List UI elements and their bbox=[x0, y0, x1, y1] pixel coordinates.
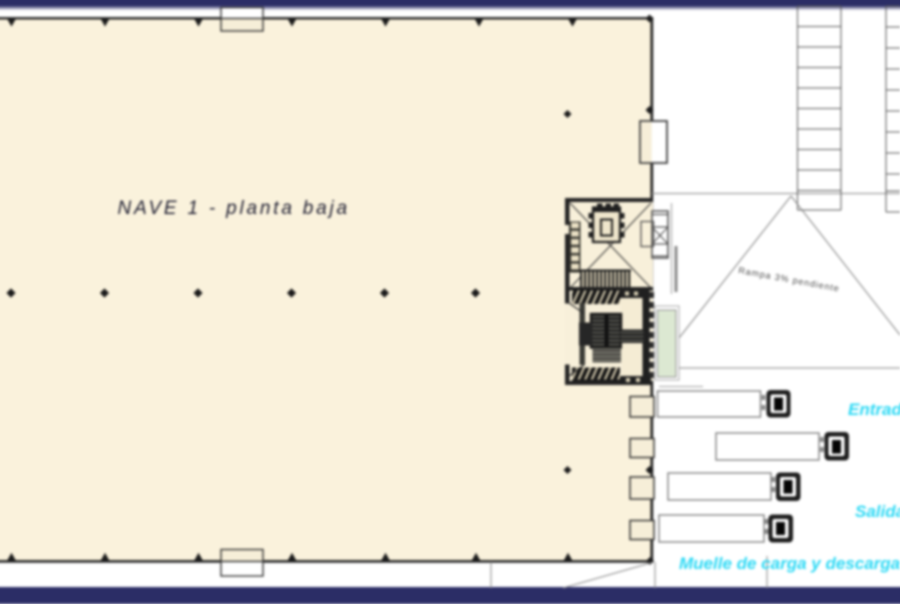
svg-text:Salida: Salida bbox=[855, 502, 900, 521]
svg-text:Entrada: Entrada bbox=[848, 400, 900, 419]
svg-text:NAVE 1 - planta baja: NAVE 1 - planta baja bbox=[118, 198, 350, 219]
svg-text:Muelle de carga y descarga: Muelle de carga y descarga bbox=[679, 554, 900, 573]
